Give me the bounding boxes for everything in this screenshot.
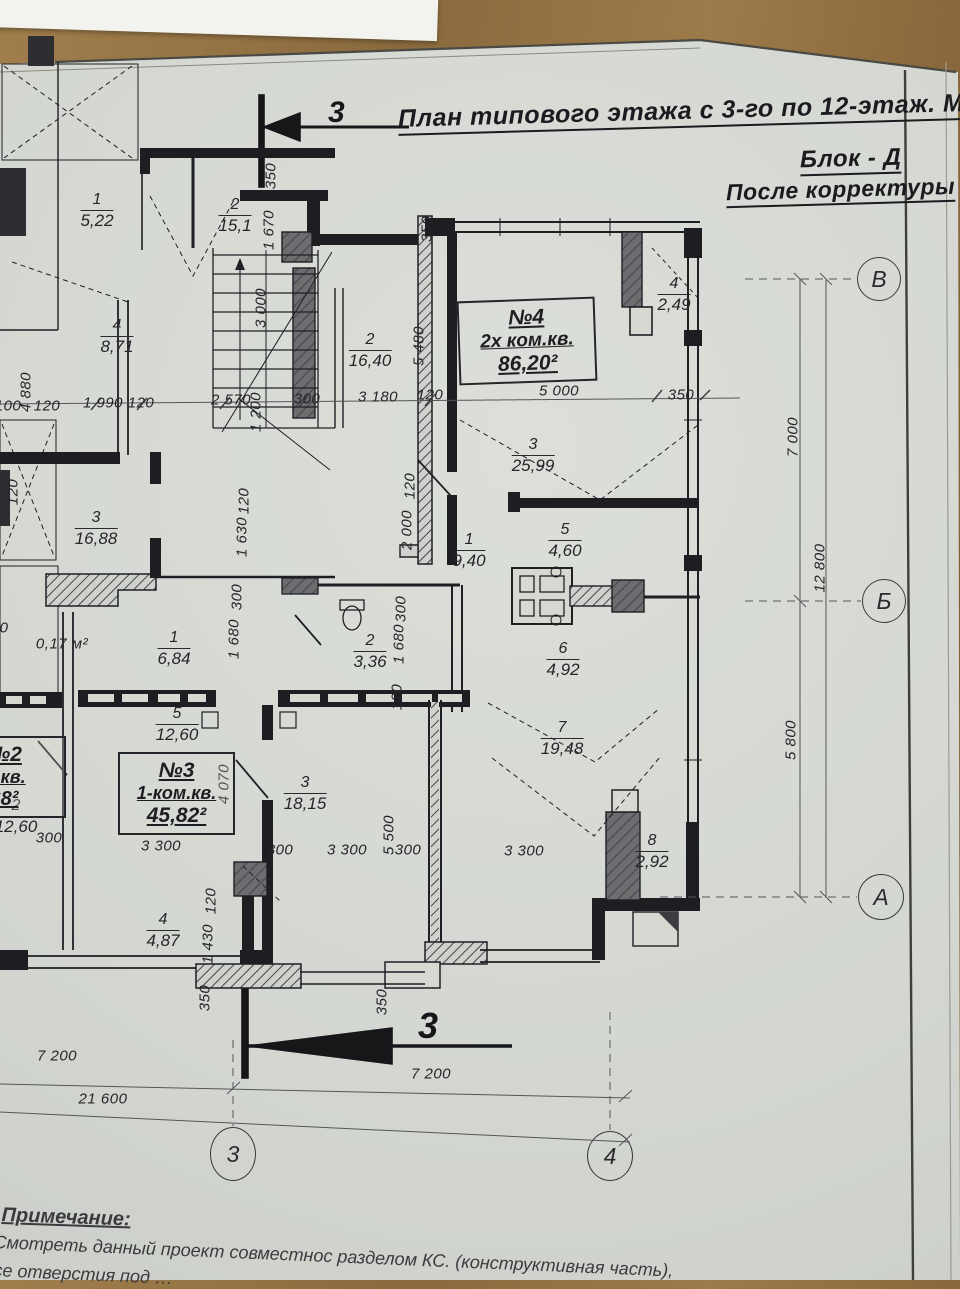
dimension-label: 7 200: [37, 1048, 77, 1065]
drawing-block-label: Блок - Д: [800, 144, 902, 177]
room-area: 19,48: [541, 739, 584, 758]
dimension-label: 0,17 м²: [36, 636, 88, 653]
dimension-label: 120: [236, 488, 253, 515]
apartment-label-line: 68²: [0, 788, 56, 811]
room-area: 18,15: [284, 794, 327, 813]
dimension-label: 350: [374, 989, 391, 1016]
dimension-label: 3 300: [327, 842, 367, 859]
dimension-label: 120: [34, 398, 61, 415]
dimension-label: 7 200: [411, 1066, 451, 1083]
room-label: 48,71: [100, 318, 133, 356]
dimension-label: 1 990: [83, 395, 123, 412]
dimension-label: 1 670: [261, 210, 278, 250]
room-label: 216,40: [349, 332, 392, 370]
room-area: 4,92: [546, 660, 579, 679]
room-area: 4,60: [548, 541, 581, 560]
room-area: 6,84: [157, 649, 190, 668]
apartment-label-line: 45,82²: [128, 804, 225, 828]
room-area: 9,40: [452, 551, 485, 570]
dimension-label: 5 800: [783, 720, 800, 760]
apartment-label: №42х ком.кв.86,20²: [457, 297, 598, 386]
room-label: 19,40: [452, 532, 485, 570]
dimension-label: 0: [0, 620, 8, 637]
grid-axis-4: 4: [587, 1131, 633, 1181]
dimension-label: 120: [402, 473, 419, 500]
apartment-label-line: №3: [128, 759, 225, 783]
dimension-label: 300: [36, 830, 63, 847]
dimension-label: 4 880: [18, 372, 35, 412]
room-number: 4: [146, 912, 179, 931]
dimension-label: 3 000: [253, 288, 270, 328]
dimension-label: 350: [668, 387, 695, 404]
dimension-label: 7 000: [785, 417, 802, 457]
dimension-label: 12 800: [812, 544, 829, 593]
apartment-label-line: м.кв.: [0, 767, 56, 788]
room-area: 12,60: [0, 817, 37, 836]
section-mark-bottom: 3: [418, 1005, 438, 1047]
room-label: 215,1: [218, 197, 251, 235]
room-label: 512,60: [156, 706, 199, 744]
dimension-label: 3 300: [504, 843, 544, 860]
dimension-label: 300: [267, 842, 294, 859]
dimension-label: 120: [417, 387, 444, 404]
room-number: 4: [100, 318, 133, 337]
apartment-label: №31-ком.кв.45,82²: [118, 752, 235, 835]
room-label: 23,36: [353, 633, 386, 671]
apartment-label-line: 86,20²: [468, 350, 587, 378]
room-label: 719,48: [541, 720, 584, 758]
room-number: 5: [548, 522, 581, 541]
room-label: 15,22: [80, 192, 113, 230]
dimension-label: 300: [229, 584, 246, 611]
section-mark-top: 3: [328, 96, 345, 130]
room-area: 15,1: [218, 216, 251, 235]
apartment-label-line: 2х ком.кв.: [468, 328, 587, 354]
photo-of-floorplan: { "title": { "line1": "План типового эта…: [0, 0, 960, 1280]
room-number: 4: [657, 276, 690, 295]
dimension-label: 1 680: [391, 624, 408, 664]
room-area: 4,87: [146, 931, 179, 950]
room-area: 25,99: [512, 456, 555, 475]
room-label: 316,88: [75, 510, 118, 548]
room-area: 16,88: [75, 529, 118, 548]
room-label: 42,49: [657, 276, 690, 314]
grid-axis-В: В: [857, 257, 901, 301]
apartment-label-line: 1-ком.кв.: [128, 783, 225, 804]
room-number: 2: [353, 633, 386, 652]
note-heading: Примечание:: [1, 1204, 131, 1231]
room-area: 3,36: [353, 652, 386, 671]
dimension-label: 120: [203, 888, 220, 915]
room-label: 325,99: [512, 437, 555, 475]
dimension-label: 350: [197, 985, 214, 1012]
dimension-label: 2 570: [211, 392, 251, 409]
room-number: 1: [157, 630, 190, 649]
dimension-label: 1 630: [234, 517, 251, 557]
room-number: 6: [546, 641, 579, 660]
dimension-label: 1 430: [200, 924, 217, 964]
room-label: 64,92: [546, 641, 579, 679]
grid-axis-Б: Б: [862, 579, 906, 623]
dimension-label: 300: [395, 842, 422, 859]
room-number: 3: [512, 437, 555, 456]
room-area: 16,40: [349, 351, 392, 370]
room-number: 7: [541, 720, 584, 739]
room-area: 12,60: [156, 725, 199, 744]
dimension-label: 21 600: [79, 1091, 128, 1108]
dimension-label: 3 180: [358, 389, 398, 406]
dimension-label: 5 480: [411, 326, 428, 366]
room-number: 2: [218, 197, 251, 216]
room-number: 8: [635, 833, 668, 852]
apartment-label: №2м.кв.68²: [0, 736, 66, 818]
room-area: 2,92: [635, 852, 668, 871]
dimension-label: 2 000: [399, 510, 416, 550]
room-label: 16,84: [157, 630, 190, 668]
room-label: 318,15: [284, 775, 327, 813]
dimension-label: 1 680: [226, 619, 243, 659]
room-label: 54,60: [548, 522, 581, 560]
room-number: 3: [284, 775, 327, 794]
room-area: 8,71: [100, 337, 133, 356]
grid-axis-А: А: [858, 874, 904, 920]
room-area: 2,49: [657, 295, 690, 314]
dimension-label: 1 200: [248, 392, 265, 432]
dimension-label: 5 000: [539, 383, 579, 400]
grid-axis-3: 3: [210, 1127, 256, 1181]
dimension-label: 120: [5, 479, 22, 506]
dimension-label: 300: [393, 596, 410, 623]
room-number: 1: [80, 192, 113, 211]
apartment-label-line: №2: [0, 743, 56, 767]
room-label: 82,92: [635, 833, 668, 871]
room-number: 2: [349, 332, 392, 351]
dimension-label: 350: [263, 163, 280, 190]
dimension-label: 120: [389, 684, 406, 711]
room-label: 44,87: [146, 912, 179, 950]
room-area: 5,22: [80, 211, 113, 230]
dimension-label: 3 300: [141, 838, 181, 855]
room-number: 3: [75, 510, 118, 529]
room-number: 1: [452, 532, 485, 551]
dimension-label: 120: [128, 395, 155, 412]
room-number: 5: [156, 706, 199, 725]
dimension-label: 350: [419, 216, 436, 243]
dimension-label: 300: [294, 391, 321, 408]
